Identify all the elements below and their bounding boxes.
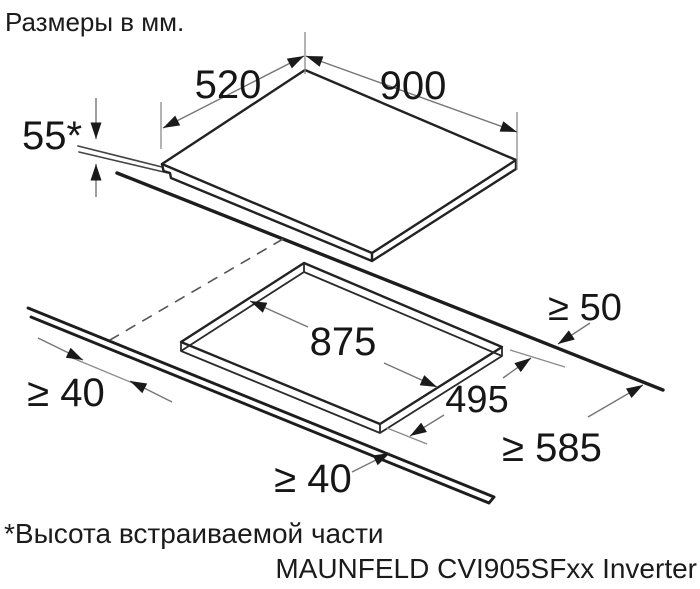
installation-dimension-diagram: 520 900 55* 875 495 bbox=[0, 0, 700, 589]
hob-edge-projection-dashed-line bbox=[110, 239, 283, 340]
dim-hob-width: 900 bbox=[306, 56, 517, 170]
extension-line bbox=[510, 350, 565, 367]
rear-clearance-label: ≥ 50 bbox=[548, 287, 622, 329]
dim-hob-depth: 520 bbox=[161, 32, 305, 149]
dimension-line bbox=[384, 363, 437, 387]
model-name: MAUNFELD CVI905SFxx Inverter bbox=[275, 553, 697, 584]
dimension-line bbox=[250, 301, 308, 327]
front-clearance-label: ≥ 40 bbox=[274, 457, 352, 501]
hob-depth-label: 520 bbox=[195, 63, 262, 107]
worktop-depth-min-label: ≥ 585 bbox=[502, 426, 602, 470]
side-clearance-label: ≥ 40 bbox=[27, 371, 105, 415]
dim-front-clearance: ≥ 40 bbox=[274, 453, 390, 501]
leader-arrow bbox=[38, 338, 83, 360]
cutout-depth-label: 495 bbox=[445, 379, 508, 421]
dim-side-clearance: ≥ 40 bbox=[27, 338, 172, 415]
hob-width-label: 900 bbox=[380, 64, 447, 108]
dimension-line bbox=[410, 415, 444, 436]
footnote: *Высота встраиваемой части bbox=[4, 518, 384, 549]
units-note: Размеры в мм. bbox=[5, 7, 184, 37]
dim-worktop-depth-min: ≥ 585 bbox=[502, 385, 643, 470]
dim-cutout-width: 875 bbox=[250, 301, 437, 387]
dim-rear-clearance: ≥ 50 bbox=[548, 287, 622, 344]
extension-line bbox=[387, 428, 427, 444]
worktop-rear-surface-lines bbox=[78, 146, 168, 173]
dimension-line bbox=[503, 358, 531, 378]
leader-arrow bbox=[130, 381, 172, 402]
diagram-canvas: 520 900 55* 875 495 bbox=[0, 0, 700, 589]
builtin-height-label: 55* bbox=[22, 114, 82, 158]
cutout-width-label: 875 bbox=[310, 320, 377, 364]
leader-arrow bbox=[588, 385, 643, 417]
